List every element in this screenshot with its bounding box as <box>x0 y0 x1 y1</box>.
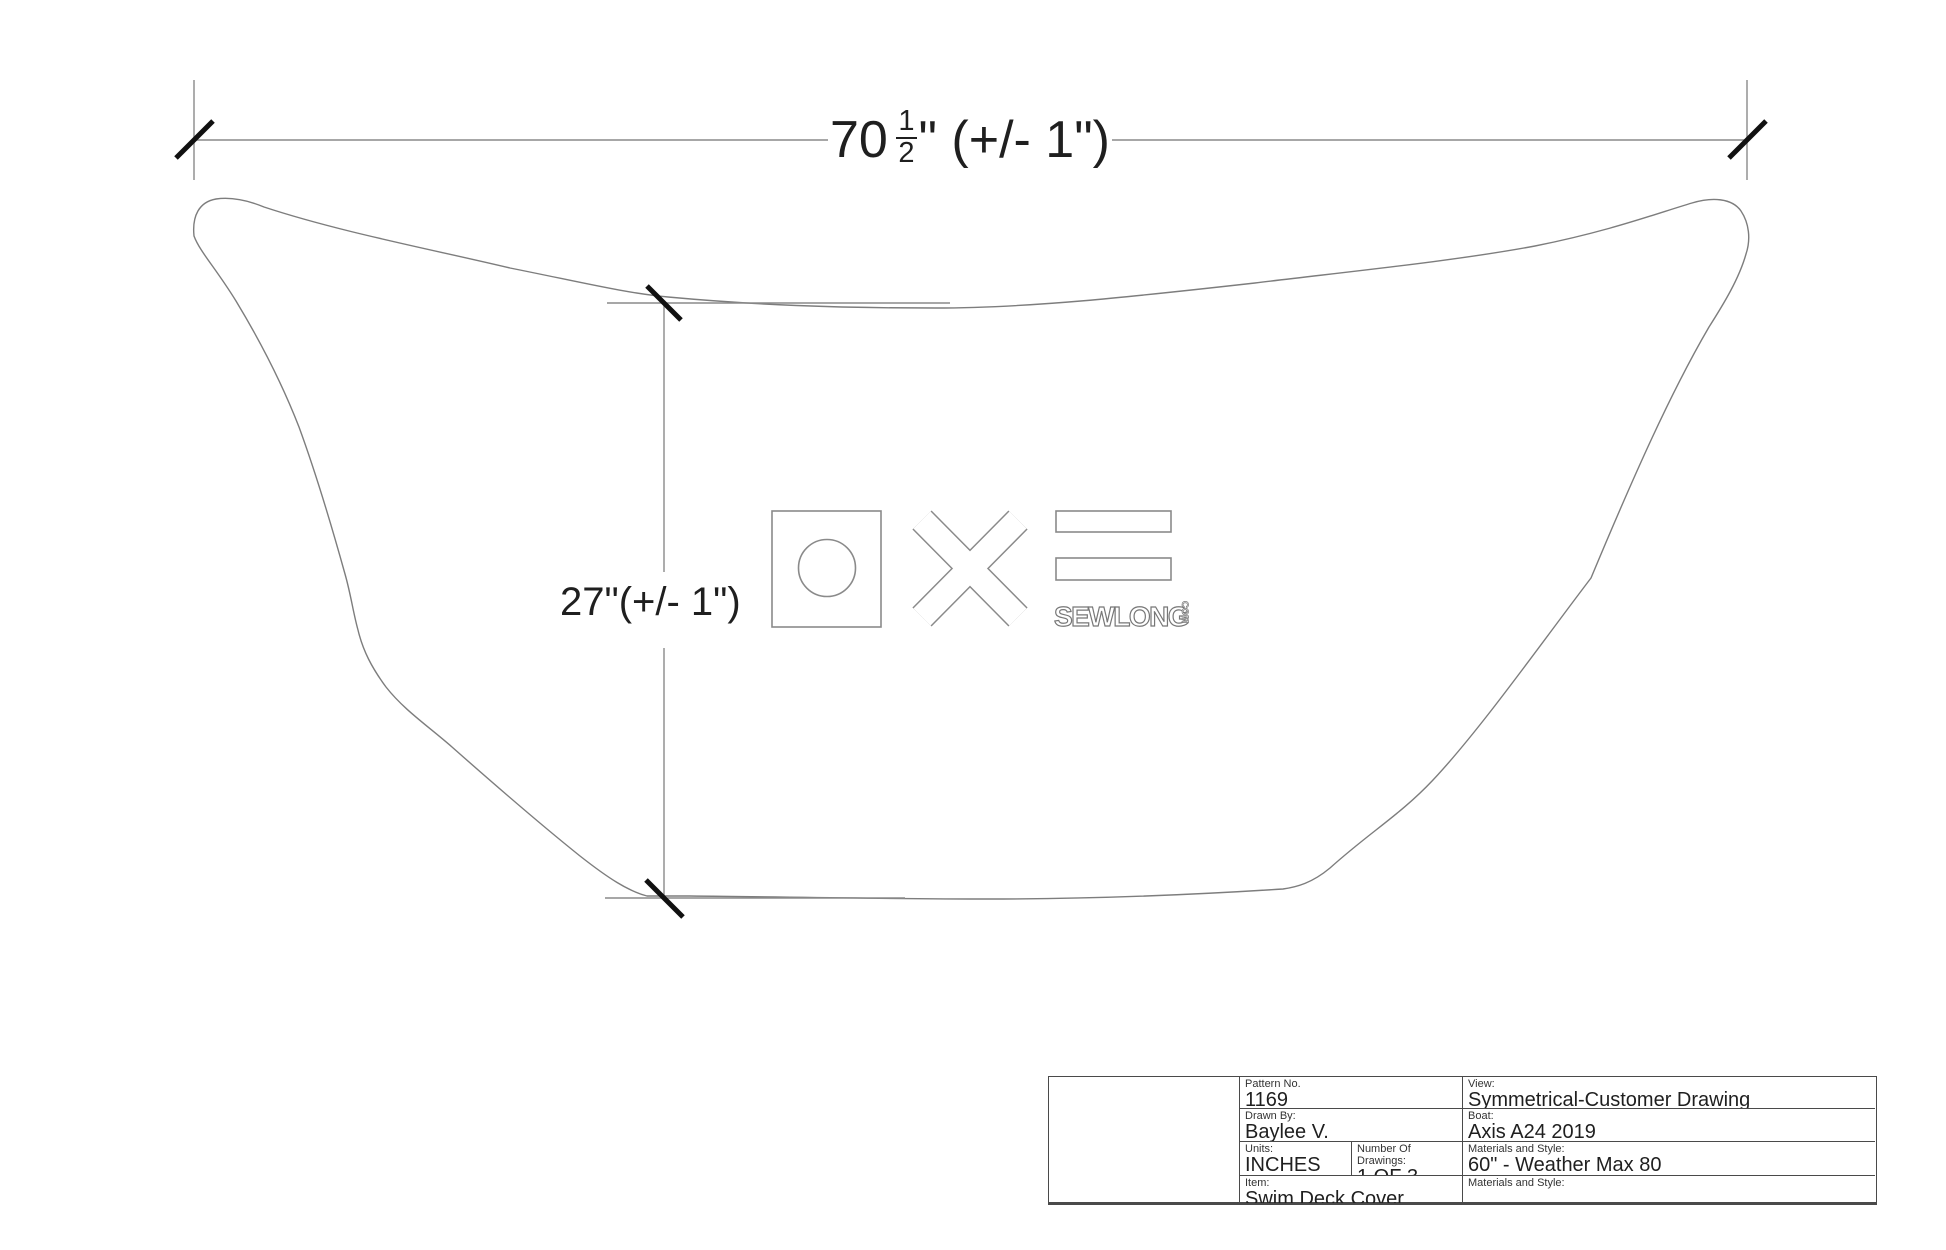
logo-bar-bottom-icon <box>1056 558 1171 580</box>
boat-value: Axis A24 2019 <box>1468 1122 1875 1141</box>
drawn-by-value: Baylee V. <box>1245 1122 1462 1141</box>
logo-bar-top-icon <box>1056 511 1171 532</box>
width-fraction-numerator: 1 <box>896 107 916 139</box>
logo-wordmark-suffix: COM <box>1179 601 1190 623</box>
item-value: Swim Deck Cover <box>1245 1189 1462 1203</box>
view-value: Symmetrical-Customer Drawing <box>1468 1090 1875 1108</box>
units-cell: Units: INCHES <box>1239 1141 1351 1175</box>
logo-wordmark: SEWLONG <box>1054 601 1189 632</box>
number-of-drawings-label: Number Of Drawings: <box>1357 1143 1462 1167</box>
units-value: INCHES <box>1245 1155 1351 1175</box>
width-dimension-label: 70 1 2 " (+/- 1") <box>830 96 1110 184</box>
logo-circle-icon <box>799 540 856 597</box>
boat-cell: Boat: Axis A24 2019 <box>1462 1108 1875 1141</box>
item-cell: Item: Swim Deck Cover <box>1239 1175 1462 1203</box>
materials-2-cell: Materials and Style: <box>1462 1175 1875 1203</box>
materials-value: 60" - Weather Max 80 <box>1468 1155 1875 1175</box>
title-block-logo-cell <box>1049 1077 1239 1203</box>
pattern-no-value: 1169 <box>1245 1090 1462 1108</box>
width-whole: 70 <box>830 110 888 170</box>
number-of-drawings-cell: Number Of Drawings: 1 OF 3 <box>1351 1141 1462 1175</box>
drawing-page: SEWLONG COM 70 1 2 " (+/- 1") 27"(+/- 1"… <box>0 0 1946 1250</box>
number-of-drawings-value: 1 OF 3 <box>1357 1167 1462 1175</box>
view-cell: View: Symmetrical-Customer Drawing <box>1462 1077 1875 1108</box>
width-suffix: " (+/- 1") <box>919 110 1111 170</box>
pattern-no-cell: Pattern No. 1169 <box>1239 1077 1462 1108</box>
logo-x-icon <box>922 520 1018 617</box>
width-fraction-denominator: 2 <box>896 139 916 169</box>
materials-2-label: Materials and Style: <box>1468 1177 1875 1189</box>
height-dimension-label: 27"(+/- 1") <box>560 578 760 626</box>
width-fraction: 1 2 <box>896 107 916 168</box>
height-text: 27"(+/- 1") <box>560 580 741 625</box>
materials-cell: Materials and Style: 60" - Weather Max 8… <box>1462 1141 1875 1175</box>
title-block: Pattern No. 1169 Drawn By: Baylee V. Uni… <box>1048 1076 1877 1205</box>
pattern-drawing-svg: SEWLONG COM <box>0 0 1946 1250</box>
drawn-by-cell: Drawn By: Baylee V. <box>1239 1108 1462 1141</box>
